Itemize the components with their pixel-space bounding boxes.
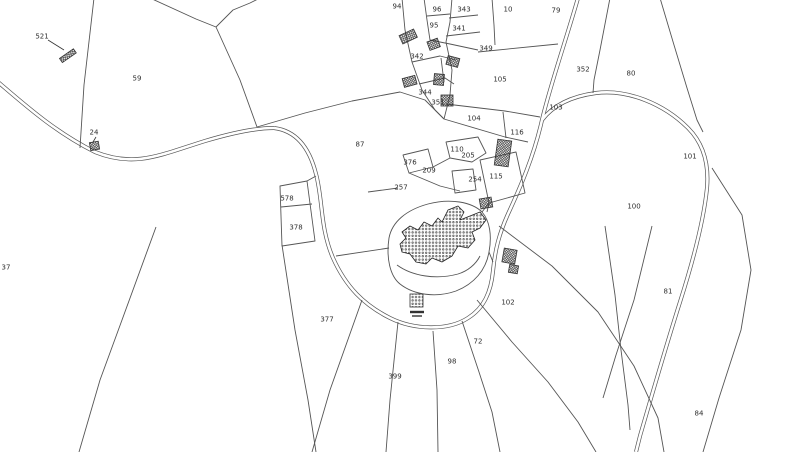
parcel-label-80: 80 [627, 70, 636, 78]
parcel-label-521: 521 [35, 33, 48, 41]
parcel-label-59: 59 [133, 75, 142, 83]
parcel-label-104: 104 [467, 115, 481, 123]
parcel-label-344: 344 [418, 89, 432, 97]
parcel-label-257: 257 [394, 184, 407, 192]
parcel-label-351: 351 [431, 99, 444, 107]
building [508, 264, 518, 273]
parcel-label-94: 94 [393, 3, 402, 11]
parcel-label-105: 105 [493, 76, 506, 84]
parcel-label-349: 349 [479, 45, 492, 53]
parcel-label-342: 342 [410, 53, 423, 61]
parcel-label-79: 79 [552, 7, 561, 15]
building [479, 197, 493, 209]
building [89, 141, 99, 150]
parcel-label-376: 376 [403, 159, 417, 167]
parcel-label-343: 343 [457, 6, 470, 14]
parcel-label-116: 116 [510, 129, 524, 137]
parcel-label-205: 205 [461, 152, 474, 160]
parcel-label-341: 341 [452, 25, 465, 33]
parcel-label-209: 209 [422, 167, 435, 175]
cadastral-map: 5215924379496343107995341342349344351105… [0, 0, 789, 452]
parcel-label-103: 103 [549, 104, 562, 112]
parcel-label-377: 377 [320, 316, 333, 324]
parcel-label-115: 115 [489, 173, 502, 181]
parcel-label-84: 84 [695, 410, 704, 418]
parcel-label-81: 81 [664, 288, 673, 296]
parcel-label-378: 378 [289, 224, 302, 232]
building [502, 248, 517, 264]
parcel-label-10: 10 [504, 6, 513, 14]
parcel-label-95: 95 [430, 22, 439, 30]
parcel-label-102: 102 [501, 299, 514, 307]
parcel-label-98: 98 [448, 358, 457, 366]
parcel-label-72: 72 [474, 338, 483, 346]
parcel-label-37: 37 [2, 264, 11, 272]
parcel-label-96: 96 [433, 6, 442, 14]
parcel-label-24: 24 [90, 129, 99, 137]
parcel-label-352: 352 [576, 66, 589, 74]
map-canvas: 5215924379496343107995341342349344351105… [0, 0, 789, 452]
map-background [0, 0, 789, 452]
building [410, 294, 423, 307]
parcel-label-101: 101 [683, 153, 696, 161]
parcel-label-100: 100 [627, 203, 640, 211]
parcel-label-87: 87 [356, 141, 365, 149]
building [433, 74, 444, 86]
parcel-label-399: 399 [388, 373, 401, 381]
parcel-label-254: 254 [468, 176, 482, 184]
parcel-label-578: 578 [280, 195, 293, 203]
